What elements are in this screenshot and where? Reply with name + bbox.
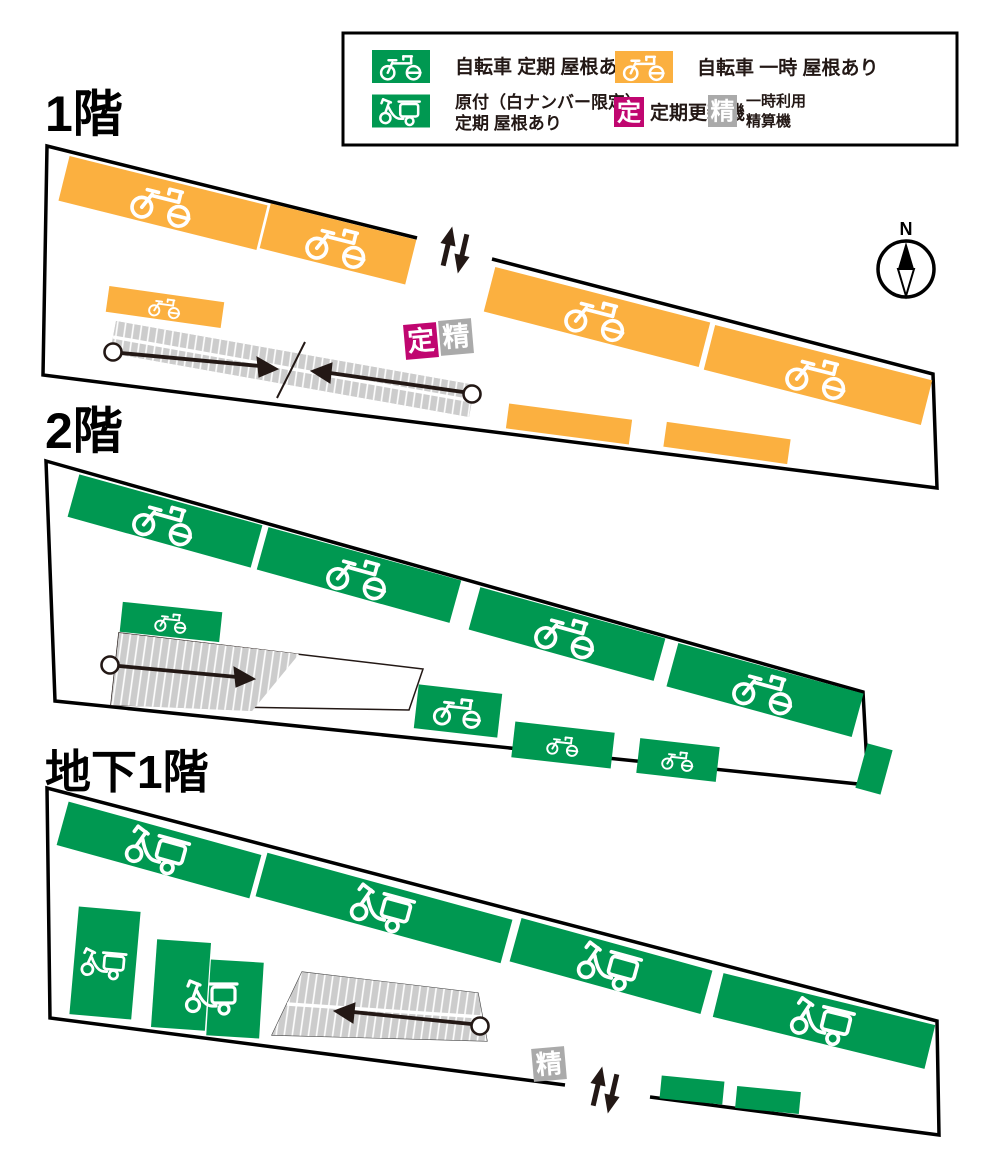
svg-text:定: 定 — [617, 99, 641, 127]
svg-text:定期 屋根あり: 定期 屋根あり — [455, 113, 562, 133]
parking-map-page: 1階 — [0, 0, 1000, 1155]
parking-area-moped-regular — [69, 907, 140, 1020]
compass: N — [878, 219, 934, 297]
payment-machine-badge: 精 — [531, 1046, 567, 1082]
floor-title: 2階 — [45, 403, 123, 459]
svg-text:定: 定 — [406, 324, 436, 357]
svg-text:精: 精 — [535, 1048, 564, 1080]
svg-text:自転車 一時 屋根あり: 自転車 一時 屋根あり — [697, 56, 879, 79]
legend: 自転車 定期 屋根あり 自転車 一時 屋根あり 原付（白ナンバー限定） 定期 屋… — [343, 33, 957, 145]
svg-text:精: 精 — [441, 321, 471, 353]
svg-text:自転車 定期 屋根あり: 自転車 定期 屋根あり — [455, 55, 637, 78]
compass-north-label: N — [900, 219, 913, 239]
svg-text:精: 精 — [711, 99, 735, 126]
svg-text:原付（白ナンバー限定）: 原付（白ナンバー限定） — [455, 92, 642, 112]
payment-machine-badge: 精 — [438, 318, 474, 356]
basement-1: 地下1階 — [45, 746, 939, 1135]
svg-text:一時利用: 一時利用 — [746, 92, 806, 110]
parking-area-moped-regular — [151, 939, 211, 1031]
floor-title: 地下1階 — [45, 746, 209, 798]
svg-text:精算機: 精算機 — [746, 112, 791, 130]
parking-map: 1階 — [0, 0, 1000, 1155]
renewal-machine-badge: 定 — [403, 322, 439, 360]
floor-title: 1階 — [45, 86, 123, 142]
legend-box — [343, 33, 957, 145]
